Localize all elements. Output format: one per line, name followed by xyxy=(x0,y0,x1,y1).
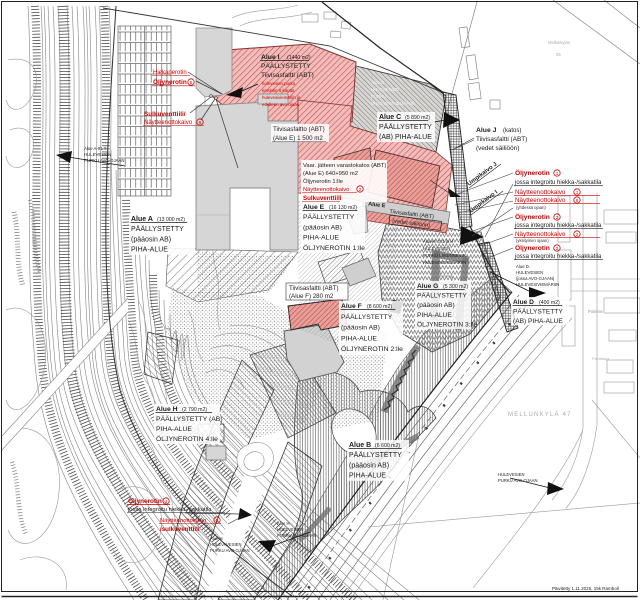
svg-text:(Alue E) 1 500 m2: (Alue E) 1 500 m2 xyxy=(273,135,323,142)
svg-text:Näytteenottokaivo: Näytteenottokaivo xyxy=(515,197,566,204)
svg-text:(yksityinen ojaan): (yksityinen ojaan) xyxy=(516,238,549,243)
svg-text:Sulkuventtiili/: Sulkuventtiili/ xyxy=(144,111,186,118)
svg-text:(1440 m2): (1440 m2) xyxy=(287,55,311,61)
svg-text:PURKU AVO-OJAAN: PURKU AVO-OJAAN xyxy=(210,548,249,553)
svg-text:(6 600 m2): (6 600 m2) xyxy=(375,443,400,449)
svg-text:Alue E: Alue E xyxy=(303,204,325,211)
svg-text:(pääosin AB): (pääosin AB) xyxy=(131,236,171,243)
svg-text:2: 2 xyxy=(556,215,559,220)
svg-text:Mellunkylän: Mellunkylän xyxy=(548,40,571,45)
svg-text:Alue H: Alue H xyxy=(210,536,223,541)
svg-text:PURKU AVO-OJAAN: PURKU AVO-OJAAN xyxy=(84,158,125,163)
svg-text:MELLUNKYLÄ 47: MELLUNKYLÄ 47 xyxy=(508,411,572,418)
svg-text:Alue H: Alue H xyxy=(277,521,290,526)
svg-text:HULEVESIEN: HULEVESIEN xyxy=(516,270,543,275)
svg-text:(vedet säiliöön): (vedet säiliöön) xyxy=(476,145,519,152)
svg-text:HULEVESIVIEMÄRIIN: HULEVESIVIEMÄRIIN xyxy=(423,260,466,265)
svg-text:(AB) PIHA-ALUE: (AB) PIHA-ALUE xyxy=(379,134,432,141)
svg-text:Alue G: Alue G xyxy=(417,283,438,290)
svg-text:HULEVESIEN: HULEVESIEN xyxy=(277,527,304,532)
svg-text:(400 m2): (400 m2) xyxy=(539,300,560,306)
svg-text:ÖLJYNEROTIN 2:lle: ÖLJYNEROTIN 2:lle xyxy=(341,345,403,353)
svg-text:Alue B: Alue B xyxy=(349,442,371,449)
svg-text:3: 3 xyxy=(556,246,559,251)
svg-text:PIHA-ALUE: PIHA-ALUE xyxy=(303,235,339,242)
svg-text:Pukintie: Pukintie xyxy=(588,309,604,314)
svg-text:Vaar. jätteen varastokatos (AB: Vaar. jätteen varastokatos (ABT) xyxy=(303,163,386,169)
svg-text:1: 1 xyxy=(576,190,579,195)
svg-text:(katos): (katos) xyxy=(503,128,521,134)
svg-text:edelleen avo-ojaan: edelleen avo-ojaan xyxy=(262,102,300,107)
svg-text:Tiivisasfaltti (ABT): Tiivisasfaltti (ABT) xyxy=(476,136,527,143)
svg-text:/sulkuventtiili: /sulkuventtiili xyxy=(160,526,200,533)
svg-text:(yhdessä ojaan): (yhdessä ojaan) xyxy=(516,205,546,210)
svg-text:(AB) PIHA-ALUE: (AB) PIHA-ALUE xyxy=(513,318,563,325)
svg-text:Öljynerotin: Öljynerotin xyxy=(515,243,550,252)
svg-text:Öljynerotin: Öljynerotin xyxy=(153,77,187,86)
svg-text:(pääosin AB): (pääosin AB) xyxy=(349,462,389,469)
svg-text:(pääosin AB): (pääosin AB) xyxy=(417,302,455,309)
svg-text:PIHA-ALUE: PIHA-ALUE xyxy=(156,426,192,433)
svg-text:2: 2 xyxy=(576,232,579,237)
svg-text:PURKU AVO-OJAAN: PURKU AVO-OJAAN xyxy=(277,533,316,538)
svg-text:HULEVESIEN: HULEVESIEN xyxy=(84,152,111,157)
svg-text:(8 600 m2): (8 600 m2) xyxy=(367,304,392,310)
svg-text:Näytteenottokaivo: Näytteenottokaivo xyxy=(144,120,193,126)
svg-text:HULEVESIEN: HULEVESIEN xyxy=(498,472,525,477)
svg-text:(pääosin AB): (pääosin AB) xyxy=(341,325,380,332)
svg-text:Alue C: Alue C xyxy=(371,80,384,85)
svg-text:Tiivisasfaltti (ABT): Tiivisasfaltti (ABT) xyxy=(289,285,339,292)
svg-text:PURKU LIIKENNEVIR.: PURKU LIIKENNEVIR. xyxy=(423,253,467,258)
svg-text:(5 300 m2): (5 300 m2) xyxy=(443,284,468,290)
svg-text:Öljynerotin: Öljynerotin xyxy=(515,168,550,177)
svg-text:hulevesien purku: hulevesien purku xyxy=(262,81,296,86)
svg-text:PURKU: PURKU xyxy=(371,94,386,99)
svg-text:Näytteenottokaivo: Näytteenottokaivo xyxy=(303,187,349,193)
svg-text:HULEVESIEN: HULEVESIEN xyxy=(371,87,399,92)
svg-text:jossa integroitu hiekka-/sakka: jossa integroitu hiekka-/sakkatila xyxy=(127,507,212,513)
svg-text:PÄÄLLYSTETTY: PÄÄLLYSTETTY xyxy=(131,225,184,233)
svg-text:Näytteenottokaivo: Näytteenottokaivo xyxy=(515,231,566,238)
svg-text:PIHA-ALUE: PIHA-ALUE xyxy=(349,473,386,480)
svg-text:Näytteenottokaivo: Näytteenottokaivo xyxy=(160,518,206,524)
svg-text:8: 8 xyxy=(576,198,579,203)
svg-text:Hiekanerotin: Hiekanerotin xyxy=(153,70,187,76)
svg-text:Tiivisasfaltti (ABT): Tiivisasfaltti (ABT) xyxy=(261,72,314,79)
svg-text:(jossa AVO-OJAAN): (jossa AVO-OJAAN) xyxy=(516,276,555,281)
svg-text:(Alue E) 640+950 m2: (Alue E) 640+950 m2 xyxy=(303,171,358,177)
svg-text:HULEVESIEN: HULEVESIEN xyxy=(423,246,450,251)
svg-text:Pukinkuja: Pukinkuja xyxy=(592,356,610,361)
svg-text:PIHA-ALUE: PIHA-ALUE xyxy=(417,312,452,319)
svg-text:PÄÄLLYSTETTY: PÄÄLLYSTETTY xyxy=(349,451,402,459)
svg-text:(2 790 m2): (2 790 m2) xyxy=(182,407,207,413)
svg-text:PIHA-ALUE: PIHA-ALUE xyxy=(341,335,377,342)
svg-text:jossa integroitu hiekka-/sakka: jossa integroitu hiekka-/sakkatila xyxy=(514,254,602,260)
svg-text:PÄÄLLYSTETTY: PÄÄLLYSTETTY xyxy=(261,62,311,70)
svg-text:ÖLJYNEROTIN 3:lle: ÖLJYNEROTIN 3:lle xyxy=(417,320,477,328)
svg-text:(16 130 m2): (16 130 m2) xyxy=(329,205,357,211)
svg-text:erotintie 6 kautta: erotintie 6 kautta xyxy=(262,88,295,93)
svg-text:(Alue F) 280 m2: (Alue F) 280 m2 xyxy=(289,293,334,300)
svg-text:Alue F: Alue F xyxy=(341,303,362,310)
svg-text:Alue A: Alue A xyxy=(131,216,153,223)
svg-text:4: 4 xyxy=(165,499,168,504)
svg-text:hulevesiviemäriin ja: hulevesiviemäriin ja xyxy=(262,95,301,100)
svg-text:PÄÄLLYSTETTY: PÄÄLLYSTETTY xyxy=(341,313,393,321)
svg-text:Alue H: Alue H xyxy=(156,406,178,413)
svg-text:PÄÄLLYSTETTY: PÄÄLLYSTETTY xyxy=(303,213,355,221)
svg-text:PÄÄLLYSTETTY (AB): PÄÄLLYSTETTY (AB) xyxy=(156,415,223,423)
svg-text:PIHA-ALUE: PIHA-ALUE xyxy=(131,247,168,254)
svg-text:Alue D.: Alue D. xyxy=(516,264,530,269)
svg-text:PÄÄLLYSTETTY: PÄÄLLYSTETTY xyxy=(513,307,563,315)
svg-text:05: 05 xyxy=(556,52,561,57)
svg-text:Alue J: Alue J xyxy=(476,127,497,134)
svg-text:PÄÄLLYSTETTY: PÄÄLLYSTETTY xyxy=(379,123,432,131)
svg-text:Tiivisasfaltto (ABT): Tiivisasfaltto (ABT) xyxy=(273,126,325,133)
svg-text:jossa integroitu hiekka-/sakka: jossa integroitu hiekka-/sakkatila xyxy=(514,223,602,229)
svg-text:Öljynerotin: Öljynerotin xyxy=(128,496,162,505)
svg-text:jossa integroitu hiekka-/sakka: jossa integroitu hiekka-/sakkatila xyxy=(514,180,602,186)
svg-text:Alue I: Alue I xyxy=(261,54,280,61)
svg-text:(pääosin AB): (pääosin AB) xyxy=(303,224,342,231)
svg-text:ÖLJYNEROTIN 4:lle: ÖLJYNEROTIN 4:lle xyxy=(156,435,218,443)
svg-text:2: 2 xyxy=(359,187,362,192)
svg-text:PURKU AVO-OJAAN: PURKU AVO-OJAAN xyxy=(498,478,537,483)
svg-text:Päivitetty 1.11.2025, 15k Ramb: Päivitetty 1.11.2025, 15k Ramboll xyxy=(552,586,619,591)
svg-text:Öljynerotin: Öljynerotin xyxy=(515,212,550,221)
svg-text:HULEVESIVIEMÄRIIN: HULEVESIVIEMÄRIIN xyxy=(516,282,559,287)
svg-text:5: 5 xyxy=(216,518,219,523)
svg-text:Näytteenottokaivo: Näytteenottokaivo xyxy=(515,189,566,196)
svg-text:(13 000 m2): (13 000 m2) xyxy=(157,217,185,223)
svg-text:1: 1 xyxy=(556,171,559,176)
svg-text:HULEVAVESIEN: HULEVAVESIEN xyxy=(210,542,242,547)
svg-text:(5 890 m2): (5 890 m2) xyxy=(405,115,430,121)
svg-text:Alue C: Alue C xyxy=(379,114,401,121)
svg-text:PÄÄLLYSTETTY: PÄÄLLYSTETTY xyxy=(417,292,467,300)
svg-text:ÖLJYNEROTIN 1:lle: ÖLJYNEROTIN 1:lle xyxy=(303,244,365,252)
svg-text:Alue D: Alue D xyxy=(513,299,534,306)
svg-text:Sulkuventtiili: Sulkuventtiili xyxy=(303,195,342,202)
svg-text:Öljynerotin 1:lle: Öljynerotin 1:lle xyxy=(303,178,343,185)
svg-text:Alue A-91 T: Alue A-91 T xyxy=(84,146,107,151)
svg-text:6: 6 xyxy=(190,80,193,85)
svg-text:HULEVESIVIEMÄRIIN: HULEVESIVIEMÄRIIN xyxy=(371,101,415,106)
svg-text:Alueen G/1 ja H: Alueen G/1 ja H xyxy=(423,239,453,244)
svg-text:6: 6 xyxy=(199,120,202,125)
